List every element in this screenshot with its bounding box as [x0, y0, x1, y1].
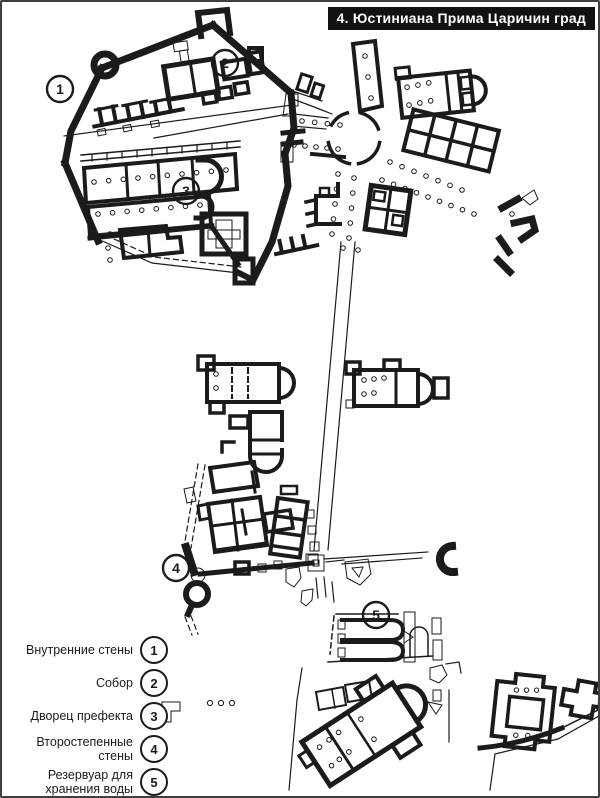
svg-text:3: 3: [182, 183, 190, 199]
rooms-complex: [198, 462, 293, 552]
south-wall: [185, 546, 454, 635]
middle-basilica-west: [198, 356, 294, 413]
legend-item-2: Собор2: [8, 669, 168, 697]
map-title: 4. Юстиниана Прима Царичин град: [328, 7, 595, 30]
east-insula: [403, 109, 499, 171]
legend-number-badge: 5: [140, 768, 168, 796]
small-room: [281, 486, 297, 494]
northeast-basilica: [395, 59, 488, 118]
aqueduct-trace: [184, 464, 205, 572]
svg-text:2: 2: [221, 55, 229, 71]
map-marker-5: 5: [363, 602, 389, 628]
cross-building: [560, 678, 600, 720]
legend-label: Внутренние стены: [8, 643, 140, 657]
map-marker-4: 4: [163, 555, 189, 581]
comb-building: [274, 234, 318, 254]
legend-label: Собор: [8, 676, 140, 690]
water-reservoir: [328, 612, 461, 742]
east-ruins: [498, 190, 538, 272]
map-page: 4. Юстиниана Прима Царичин град: [0, 0, 600, 798]
acropolis-street-line2: [154, 114, 288, 138]
south-basilica: [285, 660, 445, 798]
svg-text:1: 1: [56, 81, 64, 97]
street-east-building: [365, 185, 411, 234]
legend-number-badge: 2: [140, 669, 168, 697]
palace-portico: [81, 141, 240, 161]
legend-label: Второстепенныестены: [8, 735, 140, 763]
legend-number-badge: 4: [140, 735, 168, 763]
hook-tower: [440, 546, 454, 572]
legend: Внутренние стены1Собор2Дворец префекта3В…: [8, 636, 168, 798]
legend-item-1: Внутренние стены1: [8, 636, 168, 664]
legend-label: Дворец префекта: [8, 709, 140, 723]
legend-number-badge: 3: [140, 702, 168, 730]
legend-number-badge: 1: [140, 636, 168, 664]
middle-basilica-east: [346, 360, 448, 408]
map-marker-1: 1: [47, 76, 73, 102]
legend-item-4: Второстепенныестены4: [8, 735, 168, 763]
legend-item-5: Резервуар дляхранения воды5: [8, 768, 168, 796]
main-street: [314, 242, 355, 550]
north-road: [353, 41, 382, 111]
legend-label: Резервуар дляхранения воды: [8, 768, 140, 796]
map-markers: 12345: [47, 50, 389, 628]
svg-text:4: 4: [172, 560, 180, 576]
stray-marks: [162, 700, 235, 722]
svg-text:5: 5: [372, 607, 380, 623]
legend-item-3: Дворец префекта3: [8, 702, 168, 730]
